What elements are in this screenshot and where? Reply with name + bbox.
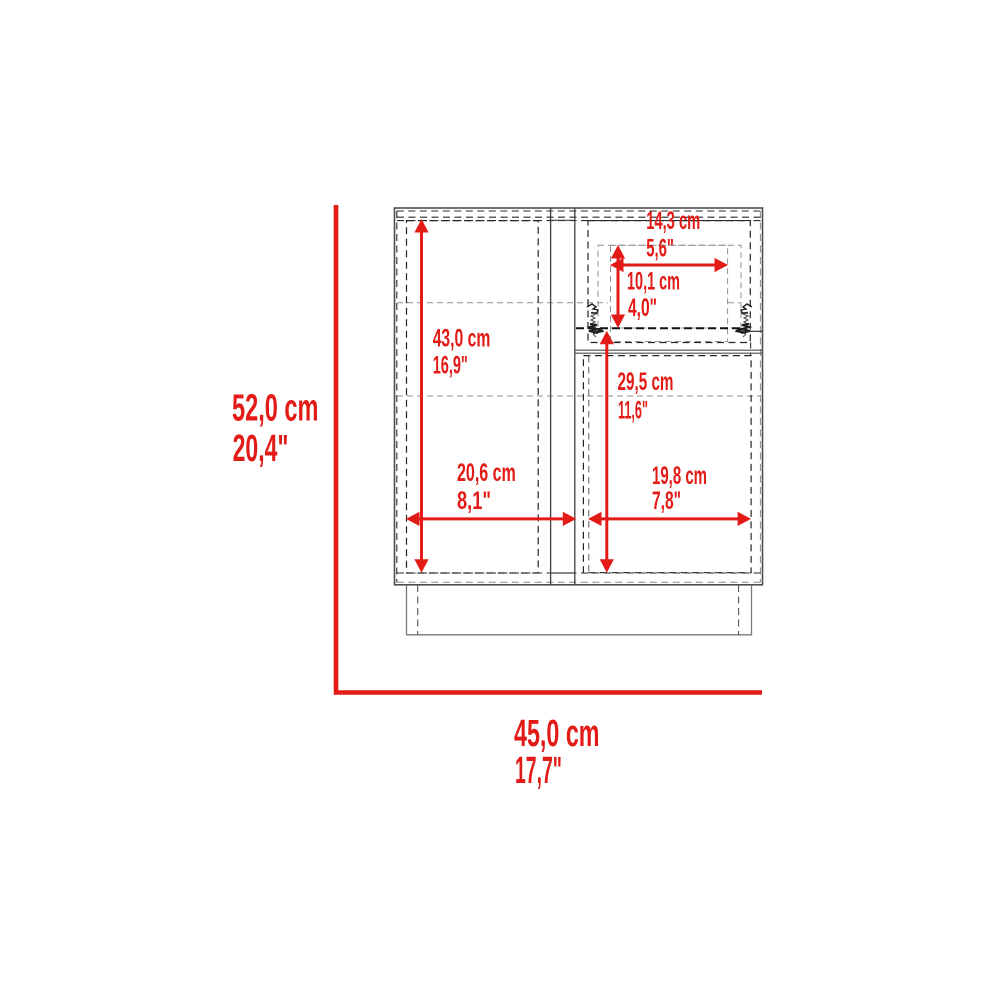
- svg-text:29,5 cm: 29,5 cm: [618, 368, 674, 396]
- svg-text:17,7": 17,7": [515, 750, 562, 792]
- svg-text:20,6 cm: 20,6 cm: [457, 459, 516, 487]
- svg-text:52,0 cm: 52,0 cm: [232, 388, 319, 430]
- svg-text:14,3 cm: 14,3 cm: [646, 207, 700, 235]
- svg-text:8,1": 8,1": [457, 487, 491, 515]
- svg-text:16,9": 16,9": [433, 351, 468, 379]
- svg-text:20,4": 20,4": [233, 428, 289, 470]
- svg-text:5,6": 5,6": [646, 235, 674, 263]
- svg-text:43,0 cm: 43,0 cm: [433, 325, 491, 353]
- svg-text:19,8 cm: 19,8 cm: [652, 462, 707, 490]
- svg-text:45,0 cm: 45,0 cm: [514, 713, 600, 755]
- svg-text:7,8": 7,8": [652, 487, 681, 515]
- svg-text:10,1 cm: 10,1 cm: [627, 268, 680, 296]
- svg-text:11,6": 11,6": [618, 396, 648, 424]
- svg-text:4,0": 4,0": [628, 294, 657, 322]
